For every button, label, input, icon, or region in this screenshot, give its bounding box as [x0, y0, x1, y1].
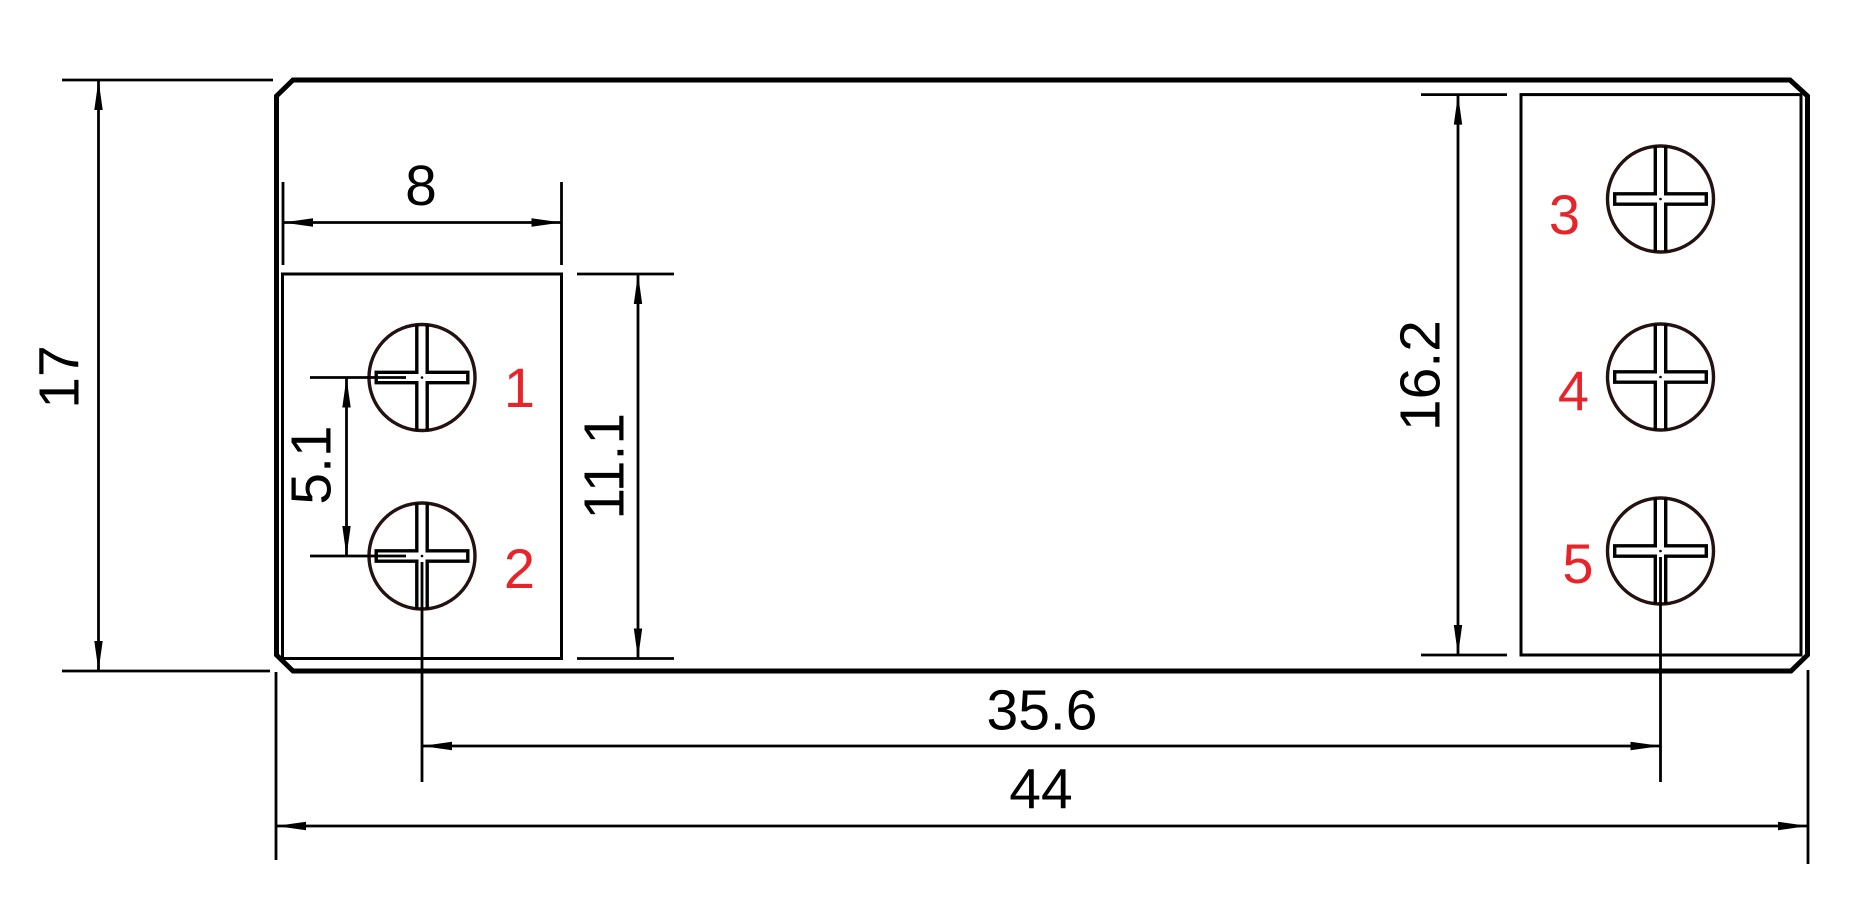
svg-text:8: 8	[405, 154, 437, 218]
svg-text:11.1: 11.1	[572, 413, 636, 520]
svg-text:44: 44	[1009, 758, 1072, 822]
svg-text:17: 17	[28, 345, 92, 408]
svg-text:4: 4	[1558, 359, 1589, 422]
svg-text:16.2: 16.2	[1389, 320, 1453, 431]
svg-text:3: 3	[1549, 183, 1580, 246]
svg-text:2: 2	[504, 537, 535, 600]
svg-text:35.6: 35.6	[987, 679, 1098, 743]
svg-text:5: 5	[1562, 532, 1593, 595]
svg-text:5.1: 5.1	[280, 425, 344, 504]
svg-text:1: 1	[504, 356, 535, 419]
